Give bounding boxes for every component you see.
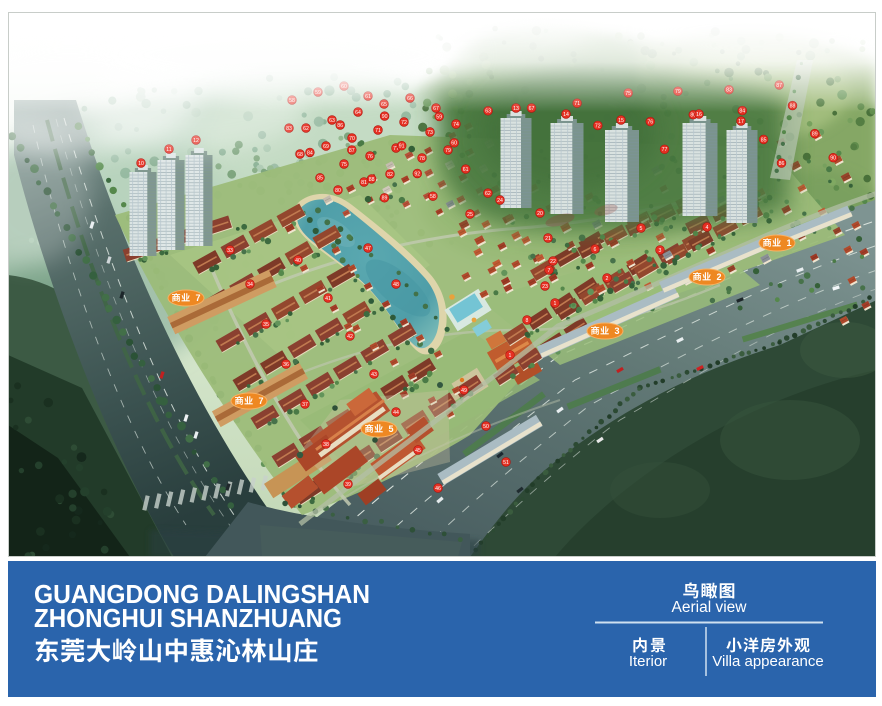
svg-text:14: 14 <box>563 112 569 118</box>
svg-text:59: 59 <box>436 114 442 120</box>
svg-text:73: 73 <box>427 130 433 136</box>
svg-text:63: 63 <box>329 118 335 124</box>
svg-text:85: 85 <box>317 176 323 182</box>
svg-text:3: 3 <box>659 248 662 254</box>
svg-text:37: 37 <box>302 402 308 408</box>
svg-text:43: 43 <box>371 372 377 378</box>
svg-text:82: 82 <box>387 172 393 178</box>
svg-text:76: 76 <box>647 120 653 126</box>
svg-text:21: 21 <box>545 236 551 242</box>
svg-text:1: 1 <box>554 301 557 307</box>
svg-text:61: 61 <box>463 167 469 173</box>
svg-text:88: 88 <box>369 177 375 183</box>
svg-text:1: 1 <box>787 238 792 248</box>
svg-text:60: 60 <box>451 141 457 147</box>
svg-text:58: 58 <box>430 194 436 200</box>
svg-text:62: 62 <box>485 191 491 197</box>
svg-text:2: 2 <box>717 272 722 282</box>
svg-text:80: 80 <box>335 188 341 194</box>
svg-text:90: 90 <box>382 114 388 120</box>
svg-text:77: 77 <box>662 147 668 153</box>
svg-text:5: 5 <box>640 226 643 232</box>
svg-text:7: 7 <box>548 268 551 274</box>
svg-text:79: 79 <box>445 148 451 154</box>
svg-text:7: 7 <box>196 293 201 303</box>
svg-text:86: 86 <box>779 161 785 167</box>
svg-text:72: 72 <box>401 120 407 126</box>
svg-text:42: 42 <box>347 334 353 340</box>
svg-text:70: 70 <box>349 136 355 142</box>
svg-text:92: 92 <box>414 171 420 177</box>
svg-text:Iterior: Iterior <box>629 653 667 670</box>
svg-text:38: 38 <box>323 442 329 448</box>
svg-text:89: 89 <box>382 196 388 202</box>
svg-text:49: 49 <box>461 388 467 394</box>
svg-text:6: 6 <box>594 247 597 253</box>
svg-text:46: 46 <box>435 486 441 492</box>
svg-text:2: 2 <box>606 276 609 282</box>
svg-text:75: 75 <box>341 162 347 168</box>
svg-text:7: 7 <box>259 396 264 406</box>
svg-text:76: 76 <box>367 154 373 160</box>
svg-text:23: 23 <box>542 284 548 290</box>
svg-text:69: 69 <box>323 144 329 150</box>
svg-text:68: 68 <box>297 152 303 158</box>
svg-text:91: 91 <box>399 144 405 150</box>
svg-text:85: 85 <box>761 137 767 143</box>
svg-text:8: 8 <box>526 318 529 324</box>
svg-text:15: 15 <box>618 118 624 124</box>
svg-text:45: 45 <box>415 448 421 454</box>
svg-text:87: 87 <box>349 148 355 154</box>
svg-text:47: 47 <box>365 246 371 252</box>
svg-text:33: 33 <box>227 248 233 254</box>
svg-text:ZHONGHUI SHANZHUANG: ZHONGHUI SHANZHUANG <box>34 605 342 633</box>
svg-text:72: 72 <box>595 123 601 129</box>
svg-text:50: 50 <box>483 424 489 430</box>
svg-text:10: 10 <box>138 161 144 167</box>
svg-text:86: 86 <box>337 123 343 129</box>
svg-text:41: 41 <box>325 296 331 302</box>
svg-text:74: 74 <box>453 122 459 128</box>
svg-text:5: 5 <box>389 424 394 434</box>
svg-text:36: 36 <box>283 362 289 368</box>
svg-text:24: 24 <box>497 198 503 204</box>
svg-text:Aerial view: Aerial view <box>672 599 748 616</box>
svg-text:Villa appearance: Villa appearance <box>712 653 823 670</box>
svg-text:51: 51 <box>503 460 509 466</box>
svg-text:89: 89 <box>812 132 818 138</box>
svg-text:3: 3 <box>615 326 620 336</box>
svg-text:22: 22 <box>550 259 556 265</box>
svg-text:20: 20 <box>537 211 543 217</box>
svg-text:17: 17 <box>738 119 744 125</box>
svg-text:62: 62 <box>303 126 309 132</box>
svg-text:90: 90 <box>830 156 836 162</box>
svg-text:71: 71 <box>375 128 381 134</box>
svg-text:48: 48 <box>393 282 399 288</box>
svg-text:84: 84 <box>307 150 313 156</box>
svg-text:25: 25 <box>467 212 473 218</box>
svg-text:35: 35 <box>263 322 269 328</box>
svg-text:39: 39 <box>345 482 351 488</box>
svg-text:40: 40 <box>295 258 301 264</box>
svg-text:44: 44 <box>393 410 399 416</box>
svg-text:34: 34 <box>247 282 253 288</box>
svg-text:4: 4 <box>706 225 709 231</box>
svg-text:78: 78 <box>419 156 425 162</box>
svg-text:81: 81 <box>361 180 367 186</box>
svg-text:16: 16 <box>696 112 702 118</box>
svg-text:1: 1 <box>509 353 512 359</box>
